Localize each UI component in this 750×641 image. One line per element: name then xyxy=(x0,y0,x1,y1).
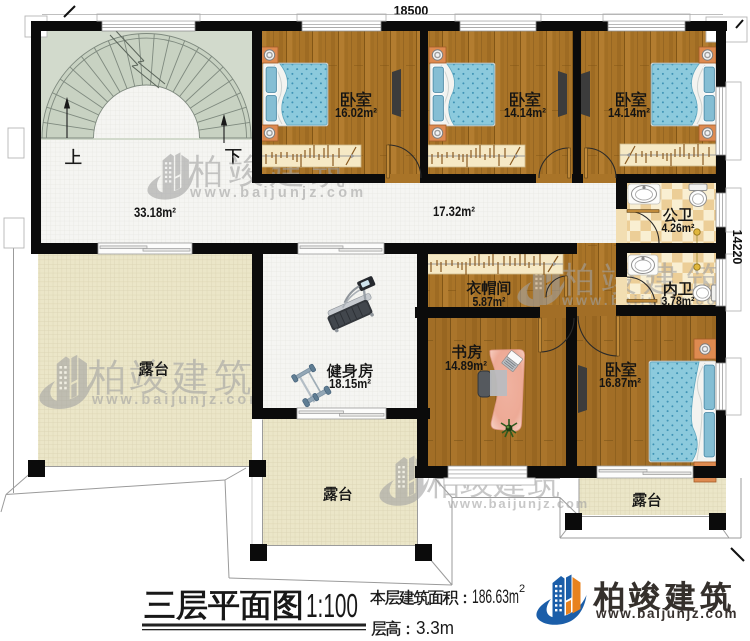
svg-text:www.baijunjz.com: www.baijunjz.com xyxy=(91,392,265,408)
svg-text:www.baijunjz.com: www.baijunjz.com xyxy=(447,496,589,511)
svg-text:16.02m²: 16.02m² xyxy=(335,105,378,120)
svg-text:www.baijunjz.com: www.baijunjz.com xyxy=(189,185,366,201)
svg-text:14.14m²: 14.14m² xyxy=(504,105,547,120)
svg-text:14.89m²: 14.89m² xyxy=(445,359,487,373)
svg-text:3.3m: 3.3m xyxy=(416,617,454,638)
svg-text:16.87m²: 16.87m² xyxy=(599,375,642,390)
svg-text:17.32m²: 17.32m² xyxy=(433,204,475,219)
svg-text:14.14m²: 14.14m² xyxy=(608,105,651,120)
svg-text:1:100: 1:100 xyxy=(306,587,358,624)
svg-text:5.87m²: 5.87m² xyxy=(473,295,506,309)
svg-text:www.baijunjz.com: www.baijunjz.com xyxy=(595,606,738,621)
svg-text:2: 2 xyxy=(519,583,525,595)
svg-text:18500: 18500 xyxy=(394,4,429,18)
svg-text:3.78m²: 3.78m² xyxy=(662,294,695,308)
svg-text:18.15m²: 18.15m² xyxy=(329,377,371,391)
svg-text:33.18m²: 33.18m² xyxy=(134,205,176,220)
svg-text:14220: 14220 xyxy=(730,230,744,265)
svg-text:186.63m: 186.63m xyxy=(472,587,519,608)
svg-text:4.26m²: 4.26m² xyxy=(662,221,695,235)
